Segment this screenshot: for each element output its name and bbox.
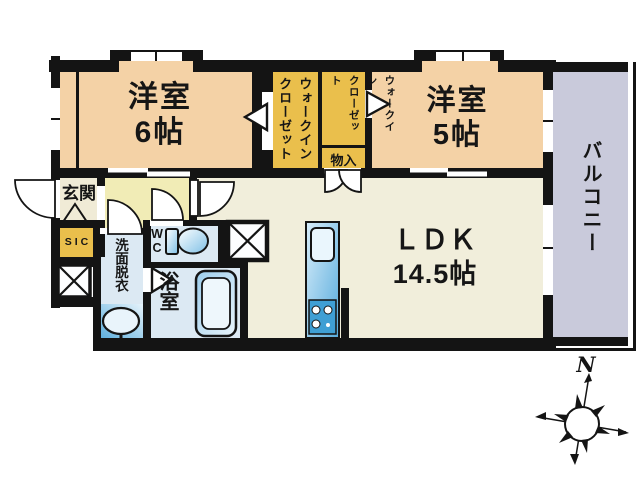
compass-icon: N	[535, 352, 629, 465]
bathtub-icon	[196, 271, 236, 336]
floor-plan-drawing: N	[0, 0, 640, 480]
toilet-icon	[166, 229, 208, 255]
storage-floor	[322, 148, 365, 168]
bedroom-5-sliding-door	[410, 168, 448, 173]
bath-door-opening	[143, 268, 151, 292]
entrance-hall-door-opening	[97, 186, 105, 220]
compass-north-label: N	[575, 352, 596, 377]
ldk-balcony-window	[543, 205, 553, 295]
bedroom-6-sliding-door	[108, 168, 148, 173]
stove-icon	[309, 300, 336, 334]
shoe-closet-floor	[59, 228, 97, 257]
bedroom-6-sliding-door	[147, 172, 190, 177]
ldk-door-leaf	[190, 180, 198, 216]
entrance-door-swing	[15, 180, 55, 218]
washroom-vanity	[101, 304, 143, 340]
bedroom-6-recess-line	[76, 72, 79, 168]
kitchen-counter	[306, 222, 339, 338]
bedroom-5-floor	[372, 72, 543, 168]
kitchen-sink-icon	[311, 228, 334, 261]
balcony-floor	[553, 72, 628, 338]
entrance-floor	[59, 176, 97, 220]
floor-plan: N 洋室 6帖 洋室 5帖 ＬＤＫ 14.5帖 ウォークイン クローゼット ウォ…	[0, 0, 640, 480]
bedroom-5-sliding-door	[447, 172, 487, 177]
wic-right-floor	[322, 72, 365, 145]
bedroom-6-floor	[59, 72, 252, 168]
wic-left-floor	[273, 72, 318, 168]
vanity-sink-icon	[103, 308, 139, 334]
